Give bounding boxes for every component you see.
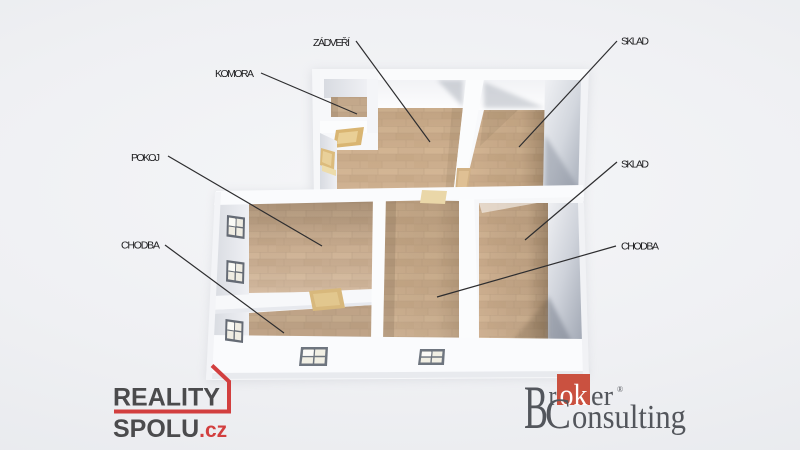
svg-text:C: C	[545, 391, 571, 438]
svg-text:SKLAD: SKLAD	[621, 159, 649, 171]
svg-text:KOMORA: KOMORA	[215, 68, 254, 80]
svg-text:ZÁDVEŘÍ: ZÁDVEŘÍ	[313, 36, 350, 49]
svg-text:CHODBA: CHODBA	[621, 241, 659, 253]
svg-text:®: ®	[617, 385, 623, 394]
svg-text:SKLAD: SKLAD	[621, 36, 649, 48]
svg-text:REALITY: REALITY	[113, 384, 220, 412]
svg-text:onsulting: onsulting	[572, 399, 686, 436]
svg-text:POKOJ: POKOJ	[131, 152, 160, 164]
svg-text:CHODBA: CHODBA	[121, 240, 160, 252]
svg-text:SPOLU.cz: SPOLU.cz	[113, 415, 227, 443]
